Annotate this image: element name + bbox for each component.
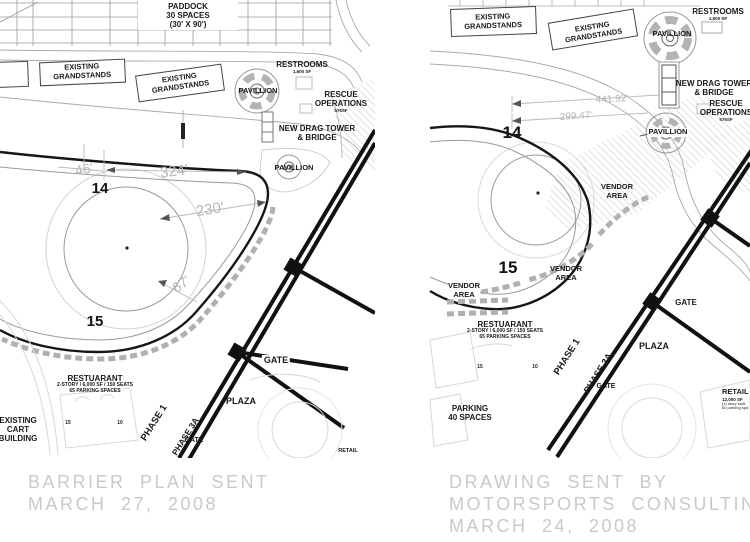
turn-15-label: 15 — [499, 258, 518, 278]
retail-label: RETAIL 12,000 SF (1) story built 60 park… — [722, 388, 750, 411]
dim-299: 299.47' — [559, 110, 592, 123]
drag-tower-label: NEW DRAG TOWER & BRIDGE — [676, 79, 750, 97]
drag-tower-icon — [262, 112, 273, 142]
pavillion-label: PAVILLION — [239, 87, 278, 96]
race-track — [0, 152, 273, 359]
lot-10: 10 — [532, 365, 538, 371]
retail-label: RETAIL — [338, 448, 357, 454]
rescue-operations-label: RESCUE OPERATIONS 576SF — [700, 99, 750, 123]
restrooms-label: RESTROOMS 1,600 SF — [692, 7, 744, 21]
right-caption-line2: MOTORSPORTS CONSULTING — [449, 493, 750, 515]
turn-15-label: 15 — [87, 313, 104, 330]
left-caption-line2: MARCH 27, 2008 — [28, 493, 270, 515]
pavillion-label: PAVILLION — [653, 30, 692, 39]
start-line-marker — [181, 123, 185, 139]
right-caption-line1: DRAWING SENT BY — [449, 471, 750, 493]
vendor-area-label-2: VENDOR AREA — [550, 265, 582, 282]
left-caption: BARRIER PLAN SENT MARCH 27, 2008 — [28, 471, 270, 515]
plaza-label: PLAZA — [639, 341, 669, 351]
restaurant-label: RESTUARANT 2-STORY / 6,000 SF / 150 SEAT… — [467, 320, 543, 341]
gate-small-label: GATE — [597, 383, 616, 391]
pavillion2-label: PAVILLION — [648, 128, 689, 137]
restrooms-structure — [702, 22, 722, 33]
restaurant-label: RESTUARANT 2-STORY / 6,000 SF / 150 SEAT… — [57, 374, 133, 395]
dim-324: 324' — [159, 161, 189, 182]
vendor-area-label-1: VENDOR AREA — [601, 183, 633, 200]
lot-10: 10 — [117, 421, 123, 427]
rescue-operations-label: RESCUE OPERATIONS 576SF — [315, 90, 367, 114]
cart-building-label: EXISTING CART BUILDING — [0, 416, 37, 444]
plan-comparison-screenshot: PADDOCK 30 SPACES (30' X 90') EXISTING G… — [0, 0, 750, 542]
gate-small-label: GATE — [185, 437, 204, 445]
paddock-edge — [448, 0, 700, 6]
pavillion2-label: PAVILLION — [275, 164, 314, 173]
dim-441: 441.92' — [595, 93, 628, 106]
drag-tower-label: NEW DRAG TOWER & BRIDGE — [279, 124, 355, 142]
right-caption-line3: MARCH 24, 2008 — [449, 515, 750, 537]
paddock-label: PADDOCK 30 SPACES (30' X 90') — [166, 2, 209, 30]
vendor-area-label-3: VENDOR AREA — [448, 282, 480, 299]
turn-14-label: 14 — [503, 123, 522, 143]
lot-15: 15 — [65, 421, 71, 427]
turn-14-label: 14 — [92, 180, 109, 197]
lot-15: 15 — [477, 365, 483, 371]
barrier-lines — [179, 130, 375, 458]
right-caption: DRAWING SENT BY MOTORSPORTS CONSULTING M… — [449, 471, 750, 537]
plaza-label: PLAZA — [226, 396, 256, 406]
restrooms-label: RESTROOMS 1,600 SF — [276, 60, 328, 74]
gate-label: GATE — [262, 355, 290, 365]
grandstands-label-1: EXISTING GRANDSTANDS — [53, 62, 111, 82]
left-caption-line1: BARRIER PLAN SENT — [28, 471, 270, 493]
gate-label: GATE — [673, 298, 699, 307]
restrooms-structure — [296, 77, 312, 113]
site-outlines — [0, 301, 342, 458]
parking-label: PARKING 40 SPACES — [448, 404, 491, 422]
grandstands-label-1: EXISTING GRANDSTANDS — [464, 12, 522, 31]
